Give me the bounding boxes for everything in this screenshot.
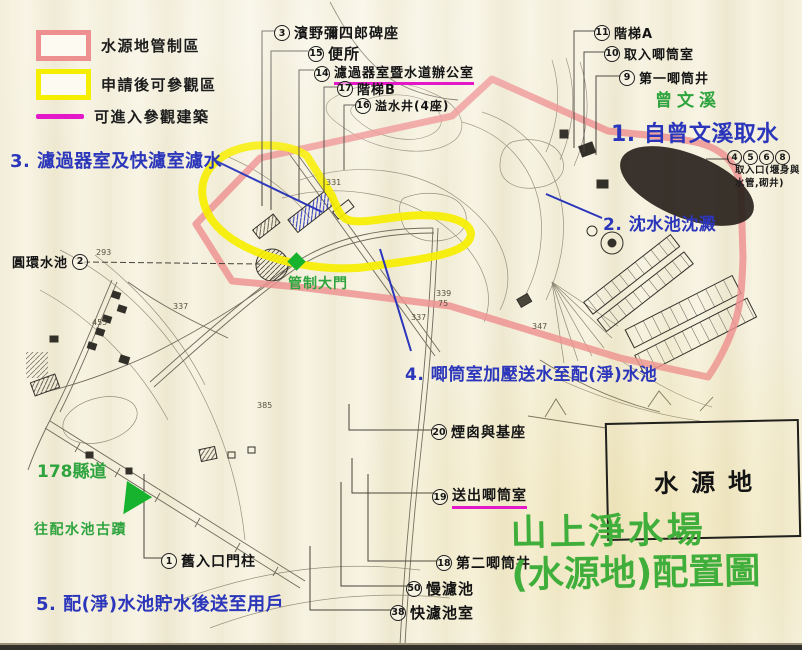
area-box-label: 水源地 bbox=[641, 461, 766, 499]
waterworks-map-photo: 45533733733133975347293385 水源地管制區 申請後可參觀… bbox=[0, 0, 802, 650]
legend-label: 可進入參觀建築 bbox=[94, 106, 210, 127]
photo-bottom-edge bbox=[0, 643, 802, 650]
legend-item-visit-building: 可進入參觀建築 bbox=[36, 106, 210, 127]
callout-number-circle: 4 bbox=[727, 150, 742, 165]
callout-number-circle: 6 bbox=[759, 150, 774, 165]
legend-label: 水源地管制區 bbox=[101, 35, 200, 56]
heritage-arrow bbox=[126, 493, 137, 510]
intake-number-circles: 4 5 6 8 bbox=[727, 150, 800, 165]
yellow-box-swatch bbox=[36, 69, 91, 100]
map-title: 山上淨水場 (水源地)配置圖 bbox=[510, 509, 760, 597]
callout-number-circle: 5 bbox=[743, 150, 758, 165]
map-title-line1: 山上淨水場 bbox=[510, 509, 760, 555]
callout-number-circle: 8 bbox=[775, 150, 790, 165]
intake-callout-group: 4 5 6 8 取入口(堰身與 水管,砌井) bbox=[727, 150, 800, 190]
intake-note-line2: 水管,砌井) bbox=[735, 178, 800, 191]
intake-note-line1: 取入口(堰身與 bbox=[735, 165, 800, 178]
map-title-line2: (水源地)配置圖 bbox=[511, 551, 761, 597]
legend-item-visit-zone: 申請後可參觀區 bbox=[36, 69, 217, 100]
legend-label: 申請後可參觀區 bbox=[101, 74, 217, 95]
legend-item-control-zone: 水源地管制區 bbox=[36, 30, 200, 61]
pink-box-swatch bbox=[36, 30, 91, 61]
magenta-line-swatch bbox=[36, 114, 84, 119]
